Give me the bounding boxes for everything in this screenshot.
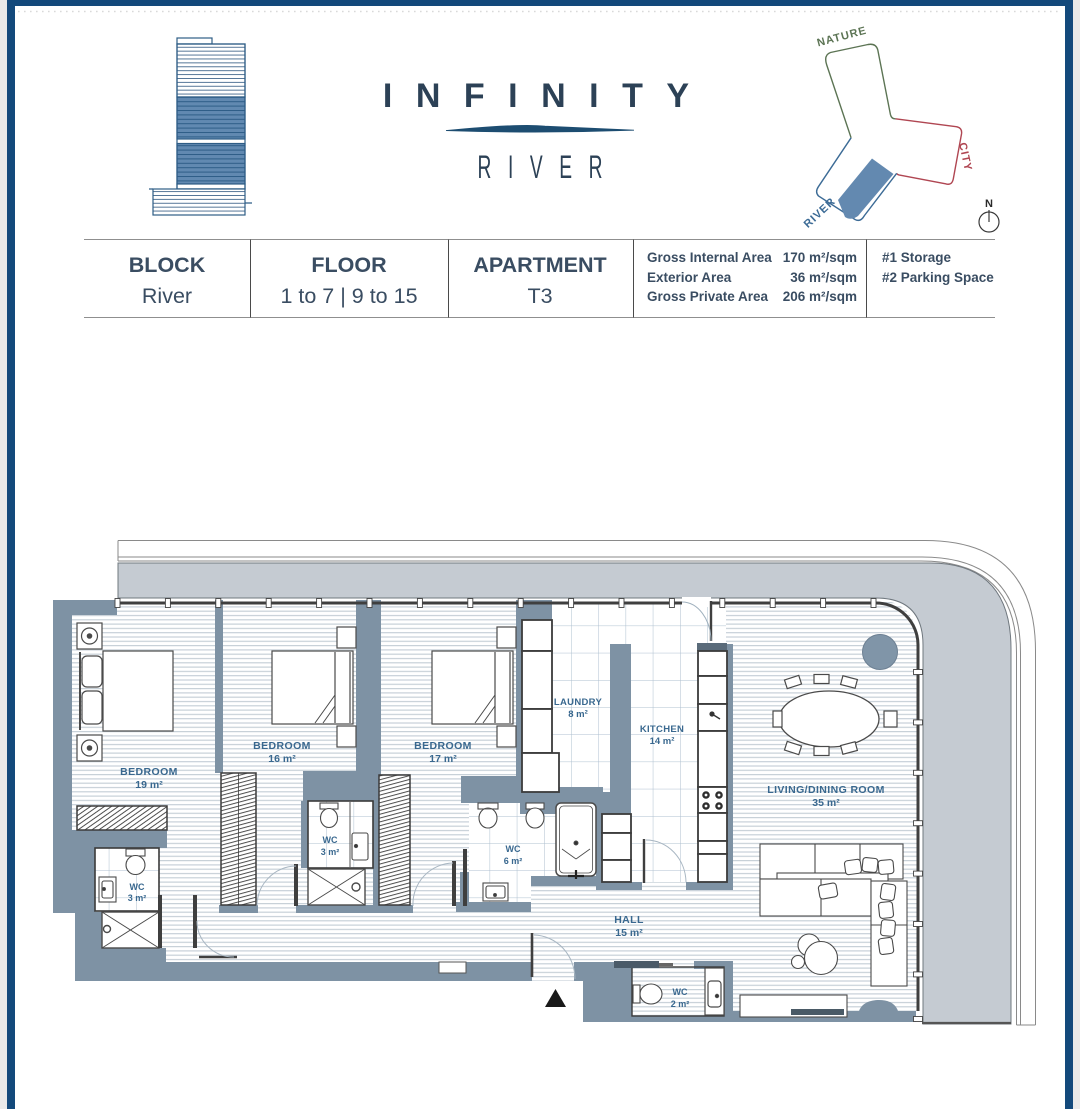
svg-text:RIVER: RIVER [478,149,619,185]
svg-text:19 m²: 19 m² [135,779,163,791]
svg-text:INFINITY: INFINITY [383,77,713,115]
svg-text:WC: WC [673,987,688,997]
svg-text:FLOOR: FLOOR [311,253,387,277]
svg-text:LAUNDRY: LAUNDRY [554,697,603,708]
svg-text:BLOCK: BLOCK [129,253,206,277]
svg-text:17 m²: 17 m² [429,753,457,765]
svg-text:N: N [985,198,993,210]
svg-text:3 m²: 3 m² [321,847,340,857]
svg-text:6 m²: 6 m² [504,856,523,866]
svg-text:#1 Storage: #1 Storage [882,250,952,265]
svg-text:LIVING/DINING ROOM: LIVING/DINING ROOM [767,784,884,796]
svg-text:BEDROOM: BEDROOM [120,766,178,778]
svg-text:8 m²: 8 m² [568,709,588,720]
svg-text:Gross Private Area: Gross Private Area [647,289,769,304]
svg-text:KITCHEN: KITCHEN [640,724,684,735]
svg-text:170 m²/sqm: 170 m²/sqm [783,250,857,265]
svg-text:3 m²: 3 m² [128,893,147,903]
svg-text:16 m²: 16 m² [268,753,296,765]
svg-text:14 m²: 14 m² [650,736,675,747]
svg-text:WC: WC [506,844,521,854]
svg-text:HALL: HALL [614,914,644,926]
svg-text:WC: WC [323,835,338,845]
svg-text:Gross Internal Area: Gross Internal Area [647,250,772,265]
svg-text:35 m²: 35 m² [812,797,840,809]
svg-text:#2 Parking Space: #2 Parking Space [882,270,994,285]
svg-text:APARTMENT: APARTMENT [473,253,606,277]
svg-text:BEDROOM: BEDROOM [414,740,472,752]
svg-text:2 m²: 2 m² [671,999,690,1009]
svg-text:36 m²/sqm: 36 m²/sqm [790,270,857,285]
svg-text:River: River [142,284,192,308]
svg-text:T3: T3 [527,284,552,308]
svg-text:1 to 7 | 9 to 15: 1 to 7 | 9 to 15 [280,284,417,308]
svg-text:WC: WC [130,882,145,892]
svg-text:206 m²/sqm: 206 m²/sqm [783,289,857,304]
svg-text:BEDROOM: BEDROOM [253,740,311,752]
svg-text:15 m²: 15 m² [615,927,643,939]
svg-text:Exterior Area: Exterior Area [647,270,732,285]
